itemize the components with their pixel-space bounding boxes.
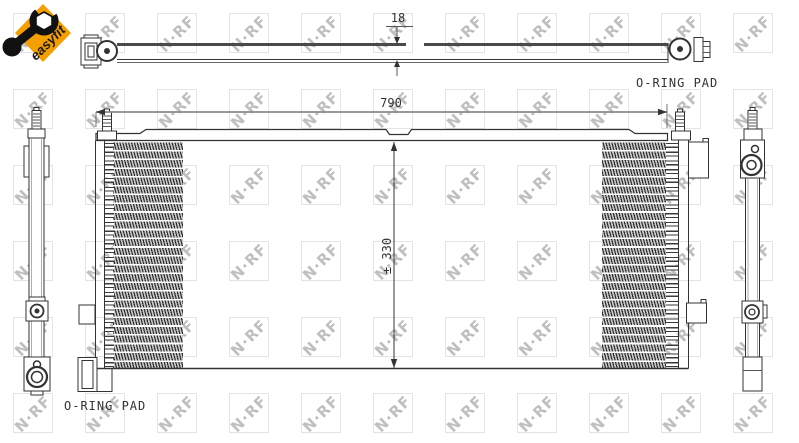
top-view: [81, 27, 710, 77]
easyfit-badge: easyfit: [0, 0, 90, 80]
left-receiver-drier-view: [24, 108, 50, 396]
dimension-width-label: 790: [363, 97, 419, 109]
right-side-tank-view: [741, 108, 768, 392]
technical-drawing-page: N·RFN·RFN·RFN·RFN·RFN·RFN·RFN·RFN·RFN·RF…: [0, 0, 799, 443]
oring-pad-label-bottom: O-RING PAD: [64, 400, 146, 412]
dimension-height-label: ± 330: [381, 227, 393, 285]
oring-pad-label-top: O-RING PAD: [636, 77, 718, 89]
drawing-linework: [0, 0, 799, 443]
dimension-thickness-label: 18: [384, 12, 412, 24]
